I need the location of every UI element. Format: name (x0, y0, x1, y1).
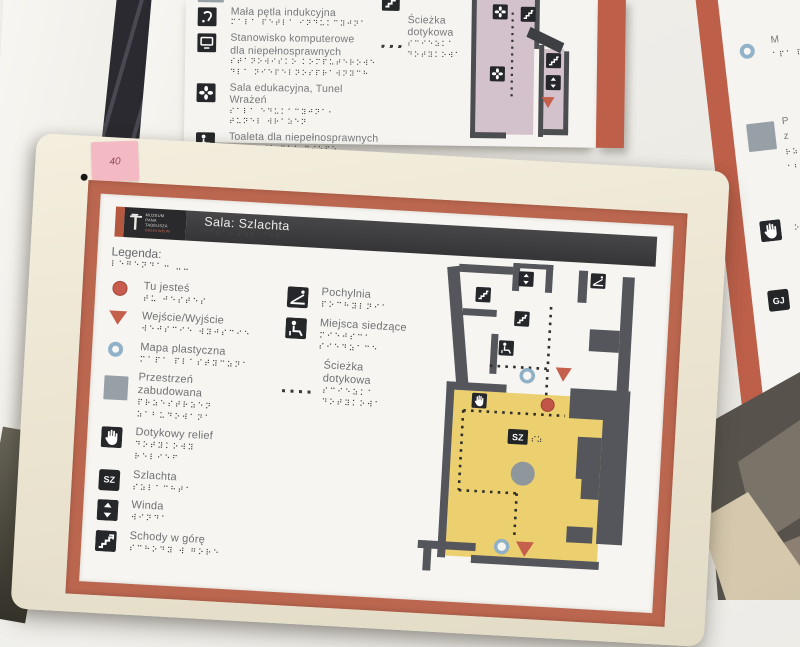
main-sign-terracotta-border: MUZEUM PANA TADEUSZA OSSOLINEUM Sala: Sz… (65, 180, 687, 627)
legend-title: Legenda: ⠇⠑⠛⠑⠝⠙⠁⠒ ⠤⠤ (111, 244, 292, 280)
seating-icon (285, 317, 307, 339)
you-are-here-marker (541, 398, 555, 412)
ramp-icon (287, 286, 309, 308)
photo-of-tactile-museum-signs: { "colors": { "frame_cream": "#ece5d2", … (0, 0, 800, 600)
legend-item-stairs-up: Schody w górę ⠎⠉⠓⠕⠙⠽ ⠺ ⠛⠕⠗⠑ (95, 528, 276, 563)
ramp-icon (590, 273, 606, 289)
elevator-icon (518, 271, 534, 287)
main-sign-panel: MUZEUM PANA TADEUSZA OSSOLINEUM Sala: Sz… (79, 194, 674, 613)
room-code-text: SZ (512, 432, 525, 443)
dotted-path-icon (282, 389, 312, 394)
floorplan-map: SZ ⠎⠵ (415, 258, 661, 606)
sticky-note-text: 40 (109, 156, 120, 167)
stairs-up-icon (95, 530, 117, 552)
legend-item-elevator: Winda ⠺⠊⠝⠙⠁ (96, 497, 277, 532)
stairs-icon (514, 311, 530, 327)
legend-item-ramp: Pochylnia ⠏⠕⠉⠓⠽⠇⠝⠊⠁ (287, 284, 454, 318)
tactile-map-marker (495, 540, 508, 553)
legend-item-szlachta: SZ Szlachta ⠎⠵⠇⠁⠉⠓⠞⠁ (98, 467, 279, 502)
legend-item-tactile-relief: Dotykowy relief ⠙⠕⠞⠽⠅⠕⠺⠽ ⠗⠑⠇⠊⠑⠋ (100, 425, 282, 471)
room-code-tile: SZ (98, 469, 120, 491)
sticky-note: 40 (91, 141, 139, 182)
legend-item-entrance-exit: Wejście/Wyjście ⠺⠑⠚⠎⠉⠊⠑ ⠺⠽⠚⠎⠉⠊⠑ (107, 308, 288, 343)
logo-monogram-icon (129, 212, 143, 233)
legend-left-column: Legenda: ⠇⠑⠛⠑⠝⠙⠁⠒ ⠤⠤ Tu jesteś ⠞⠥ ⠚⠑⠎⠞⠑⠎… (94, 244, 291, 568)
logo-subline: OSSOLINEUM (145, 228, 171, 235)
tactile-relief-hand-icon (471, 393, 487, 409)
museum-logo: MUZEUM PANA TADEUSZA OSSOLINEUM (123, 207, 187, 240)
entrance-triangle (555, 367, 572, 382)
elevator-icon (97, 499, 119, 521)
seating-icon (498, 340, 514, 356)
legend-item-you-are-here: Tu jesteś ⠞⠥ ⠚⠑⠎⠞⠑⠎ (109, 278, 290, 313)
legend-item-seating: Miejsca siedzące ⠍⠊⠑⠚⠎⠉⠁ ⠎⠊⠑⠙⠵⠁⠉⠑ (284, 315, 452, 360)
tactile-relief-hand-icon (101, 426, 123, 448)
stairs-icon (475, 287, 491, 303)
legend-item-tactile-map: Mapa plastyczna ⠍⠁⠏⠁ ⠏⠇⠁⠎⠞⠽⠉⠵⠝⠁ (105, 339, 286, 374)
built-area-icon (103, 375, 128, 400)
entrance-exit-icon (108, 310, 127, 325)
room-code-braille: ⠎⠵ (530, 435, 542, 445)
tactile-map-marker (521, 369, 534, 382)
tactile-map-icon (108, 341, 124, 357)
main-sign: 40 MUZEUM PANA TADEUSZA OSSOLINEUM (10, 133, 729, 647)
you-are-here-icon (112, 280, 128, 296)
legend-item-built-up-area: Przestrzeń zabudowana ⠏⠗⠵⠑⠎⠞⠗⠵⠑⠝ ⠵⠁⠃⠥⠙⠕⠺… (102, 369, 284, 428)
